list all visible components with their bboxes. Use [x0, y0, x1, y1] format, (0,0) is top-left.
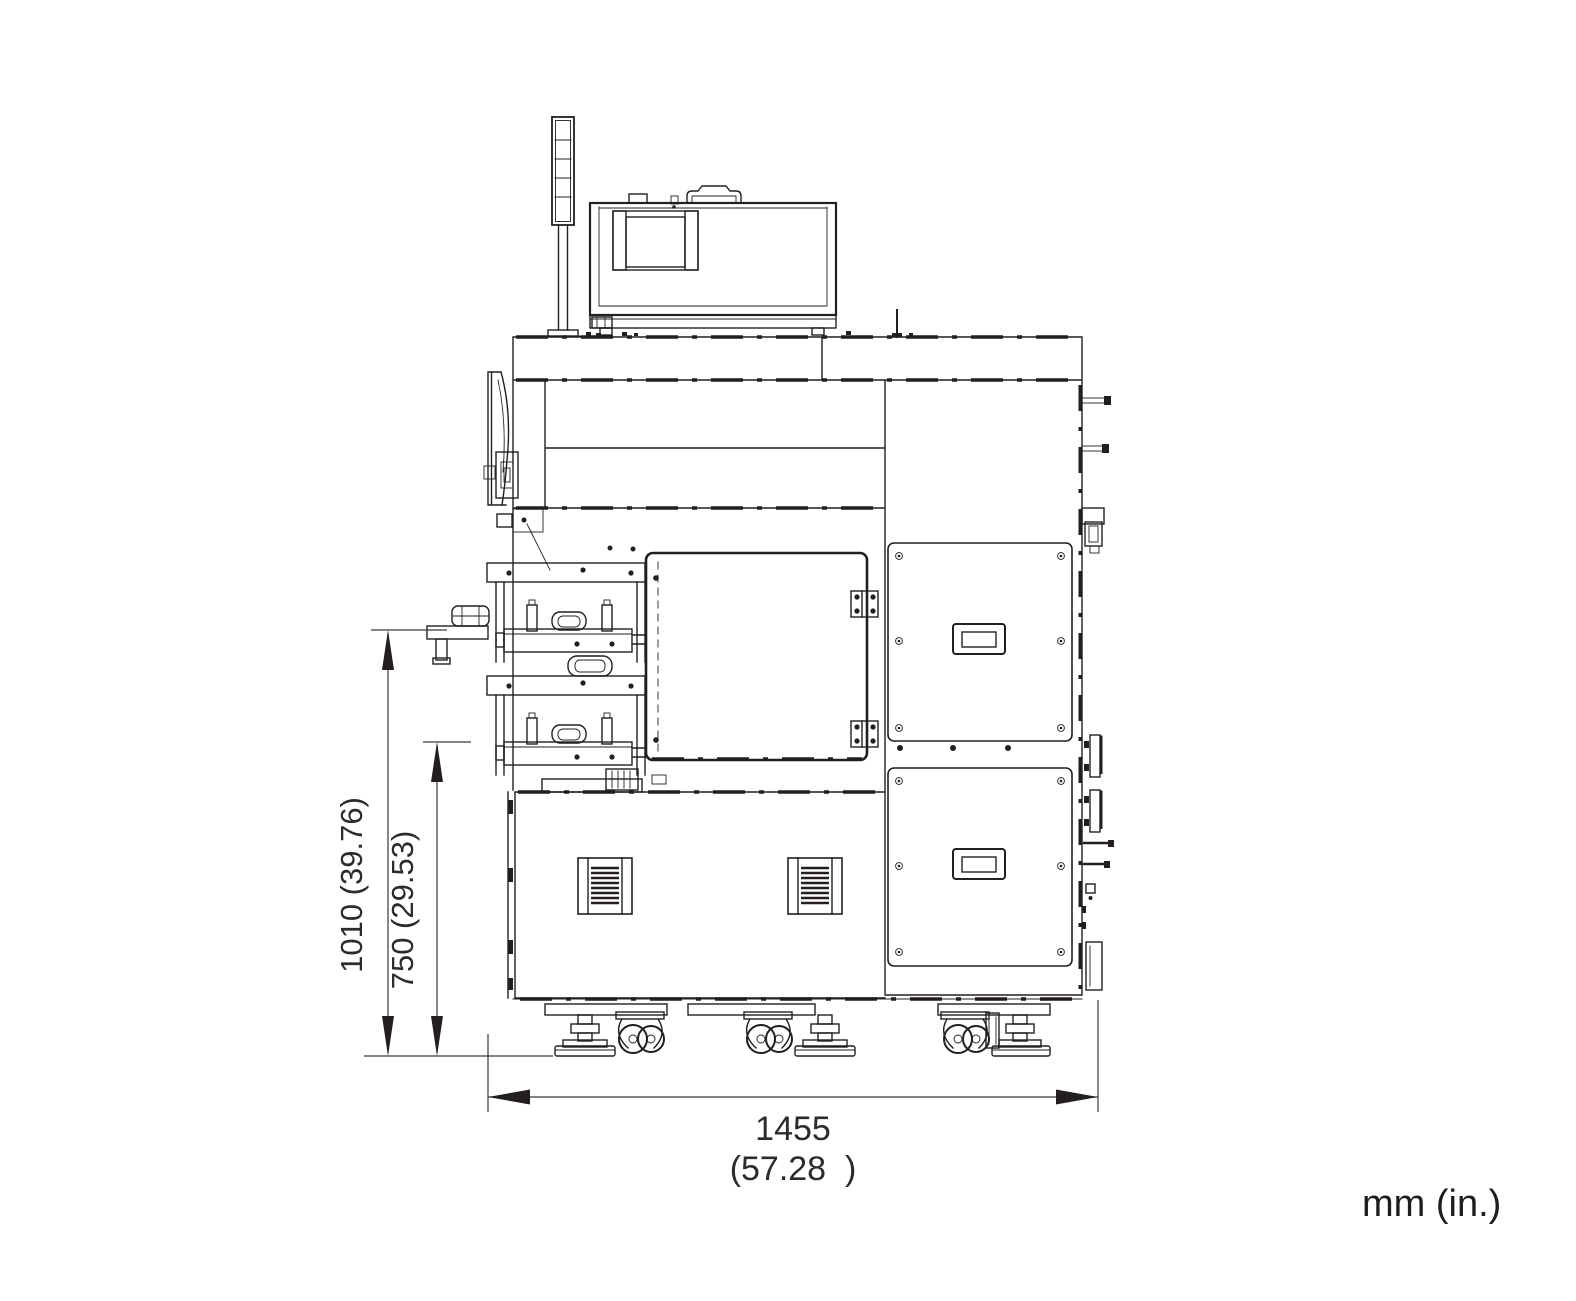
monitor-enclosure — [590, 186, 851, 336]
machine-front-view-drawing: 1010 (39.76) 750 (29.53) 1455 (57.28 ) m… — [0, 0, 1576, 1301]
foot-group-middle — [688, 1004, 855, 1056]
dimension-width-overall: 1455 (57.28 ) — [488, 1090, 1098, 1189]
stacker-tray-lower — [487, 676, 666, 792]
caster — [616, 1012, 664, 1053]
carry-handle-icon — [687, 186, 741, 203]
caster — [941, 1012, 999, 1053]
right-side-fittings — [1082, 396, 1114, 990]
access-door — [646, 553, 878, 760]
ventilation-grille-left — [578, 858, 632, 914]
monitor-screen — [613, 211, 698, 270]
dimension-height-table: 750 (29.53) — [385, 742, 443, 1056]
dim-label-height-table: 750 (29.53) — [385, 831, 420, 990]
dim-label-height-total: 1010 (39.76) — [334, 797, 369, 973]
stacker-tray-upper — [487, 563, 646, 662]
panel-handle-lower — [953, 849, 1005, 879]
lower-cabinet — [508, 792, 885, 998]
service-panel-lower — [888, 768, 1072, 966]
units-label: mm (in.) — [1362, 1183, 1501, 1225]
foot-group-right — [938, 1004, 1050, 1056]
service-panel-upper — [888, 543, 1072, 741]
panel-screws-lower — [896, 778, 1065, 956]
dim-label-width-in: (57.28 ) — [730, 1150, 857, 1188]
panel-divider-dots — [897, 745, 1011, 751]
leveling-foot — [795, 1015, 855, 1056]
drawer-handle — [568, 656, 612, 676]
dim-label-width-mm: 1455 — [755, 1110, 831, 1148]
technical-drawing-canvas: 1010 (39.76) 750 (29.53) 1455 (57.28 ) m… — [0, 0, 1576, 1301]
dimension-annotations: 1010 (39.76) 750 (29.53) 1455 (57.28 ) — [334, 630, 1098, 1188]
leveling-foot — [555, 1015, 615, 1056]
caster — [744, 1012, 792, 1053]
ventilation-grille-right — [788, 858, 842, 914]
leveling-foot — [992, 1015, 1050, 1056]
panel-screws-upper — [896, 553, 1065, 732]
signal-tower-icon — [544, 117, 601, 337]
panel-handle-upper — [953, 624, 1005, 654]
foot-group-left — [545, 1004, 667, 1056]
door-hinge-lower — [851, 721, 878, 747]
side-table — [427, 606, 489, 664]
door-hinge-upper — [851, 591, 878, 617]
